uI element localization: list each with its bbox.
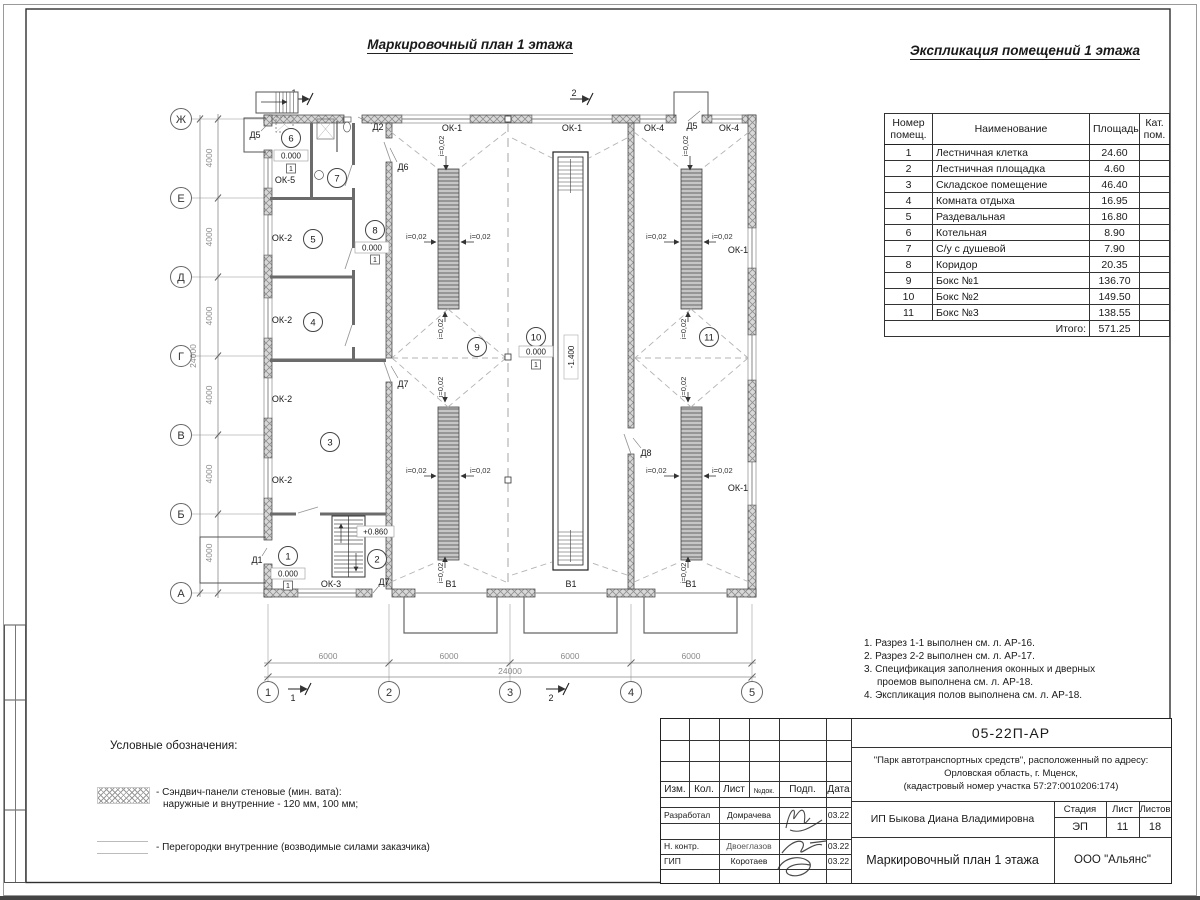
svg-text:1: 1	[373, 257, 377, 264]
svg-text:4000: 4000	[204, 543, 214, 562]
signature-developed	[780, 802, 826, 836]
svg-text:0.000: 0.000	[526, 348, 547, 357]
svg-text:i=0,02: i=0,02	[436, 563, 445, 584]
svg-text:4000: 4000	[204, 227, 214, 246]
gip-label: ГИП	[664, 856, 719, 867]
svg-text:Д: Д	[177, 272, 185, 284]
svg-text:i=0,02: i=0,02	[470, 466, 491, 475]
svg-text:4: 4	[628, 687, 634, 699]
col-cat: Кат. пом.	[1140, 114, 1170, 145]
developed-date: 03.22	[826, 810, 851, 821]
company-name: ООО "Альянс"	[1054, 837, 1171, 883]
svg-text:i=0,02: i=0,02	[712, 232, 733, 241]
svg-text:6000: 6000	[319, 651, 338, 661]
svg-text:0.000: 0.000	[362, 244, 383, 253]
svg-text:24000: 24000	[498, 666, 522, 676]
note-line: 3. Спецификация заполнения оконных и две…	[864, 663, 1194, 676]
svg-text:2: 2	[548, 693, 553, 703]
svg-text:i=0,02: i=0,02	[712, 466, 733, 475]
drawing-sheet: Ж Е Д Г В Б А 1 2 3 4 5	[0, 0, 1200, 900]
svg-text:i=0,02: i=0,02	[646, 232, 667, 241]
table-total-row: Итого:571.25	[885, 321, 1170, 337]
svg-text:i=0,02: i=0,02	[436, 377, 445, 398]
sandwich-panel-swatch	[97, 787, 150, 804]
stage-value: ЭП	[1054, 817, 1106, 837]
svg-text:ОК-2: ОК-2	[272, 475, 292, 485]
note-line: 1. Разрез 1-1 выполнен см. л. АР-16.	[864, 637, 1194, 650]
svg-text:1: 1	[290, 693, 295, 703]
table-row: 7С/у с душевой7.90	[885, 241, 1170, 257]
sheet-label: Лист	[1106, 801, 1139, 817]
col-data: Дата	[826, 784, 851, 795]
ncontr-label: Н. контр.	[664, 841, 719, 852]
axis-labels: Ж Е Д Г В Б А 1 2 3 4 5	[176, 114, 755, 699]
developed-label: Разработал	[664, 810, 719, 821]
svg-text:ОК-5: ОК-5	[275, 175, 295, 185]
table-row: 2Лестничная площадка4.60	[885, 161, 1170, 177]
svg-text:А: А	[177, 588, 185, 600]
svg-text:6000: 6000	[561, 651, 580, 661]
svg-text:4: 4	[310, 318, 315, 329]
table-row: 6Котельная8.90	[885, 225, 1170, 241]
svg-text:10: 10	[531, 333, 542, 344]
doc-number: 05-22П-АР	[851, 719, 1171, 747]
table-row: 8Коридор20.35	[885, 257, 1170, 273]
drawing-title-cell: Маркировочный план 1 этажа	[851, 837, 1054, 883]
ncontr-name: Двоеглазов	[719, 841, 779, 852]
table-row: 3Складское помещение46.40	[885, 177, 1170, 193]
svg-text:7: 7	[334, 174, 339, 185]
col-podp: Подп.	[779, 784, 826, 795]
svg-text:11: 11	[704, 333, 714, 344]
sheets-value: 18	[1139, 817, 1171, 837]
svg-text:0.000: 0.000	[281, 152, 302, 161]
svg-text:ОК-4: ОК-4	[719, 123, 739, 133]
legend: Условные обозначения: - Сэндвич-панели с…	[97, 740, 517, 854]
col-izm: Изм.	[661, 784, 689, 795]
table-row: 5Раздевальная16.80	[885, 209, 1170, 225]
svg-text:В1: В1	[445, 579, 456, 589]
svg-text:i=0,02: i=0,02	[470, 232, 491, 241]
svg-text:ОК-2: ОК-2	[272, 315, 292, 325]
svg-text:Б: Б	[177, 509, 184, 521]
svg-text:ОК-4: ОК-4	[644, 123, 664, 133]
opening-labels: ОК-1 ОК-1 ОК-4 ОК-4 Д5 Д2 Д6 Д5 ОК-5 ОК-…	[249, 121, 748, 589]
elevation-marks: 0.000 0.000 0.000 0.000 +0.860 -1.400 1 …	[271, 150, 576, 590]
note-line: проемов выполнена см. л. АР-18.	[864, 676, 1194, 689]
svg-text:В1: В1	[685, 579, 696, 589]
svg-text:-1.400: -1.400	[567, 345, 576, 368]
explication-table: Номер помещ. Наименование Площадь Кат. п…	[884, 113, 1170, 337]
svg-text:i=0,02: i=0,02	[437, 136, 446, 157]
partition-swatch	[97, 841, 148, 854]
note-line: 2. Разрез 2-2 выполнен см. л. АР-17.	[864, 650, 1194, 663]
svg-text:i=0,02: i=0,02	[406, 232, 427, 241]
plan-title: Маркировочный план 1 этажа	[250, 37, 690, 52]
signature-ncontr-gip	[774, 835, 830, 881]
svg-text:2: 2	[571, 88, 576, 98]
svg-text:9: 9	[474, 343, 479, 354]
svg-text:ОК-1: ОК-1	[442, 123, 462, 133]
col-area: Площадь	[1090, 114, 1140, 145]
staircase	[332, 516, 365, 577]
svg-text:6000: 6000	[682, 651, 701, 661]
svg-text:ОК-1: ОК-1	[728, 245, 748, 255]
gip-name: Коротаев	[719, 856, 779, 867]
svg-text:6: 6	[288, 134, 293, 145]
svg-text:1: 1	[285, 552, 290, 563]
table-row: 4Комната отдыха16.95	[885, 193, 1170, 209]
col-kol: Кол.	[689, 784, 719, 795]
svg-text:Д8: Д8	[640, 448, 651, 458]
svg-text:ОК-1: ОК-1	[728, 483, 748, 493]
sheets-label: Листов	[1139, 801, 1171, 817]
svg-text:Д7: Д7	[397, 379, 408, 389]
svg-text:Ж: Ж	[176, 114, 186, 126]
svg-text:2: 2	[386, 687, 392, 699]
col-list: Лист	[719, 784, 749, 795]
explication-title: Экспликация помещений 1 этажа	[820, 43, 1200, 58]
col-num: Номер помещ.	[885, 114, 933, 145]
svg-text:1: 1	[265, 687, 271, 699]
svg-text:1: 1	[286, 583, 290, 590]
sheet-value: 11	[1106, 817, 1139, 837]
client-name: ИП Быкова Диана Владимировна	[851, 801, 1054, 837]
svg-text:5: 5	[310, 235, 315, 246]
svg-text:ОК-3: ОК-3	[321, 579, 341, 589]
svg-text:6000: 6000	[440, 651, 459, 661]
svg-text:5: 5	[749, 687, 755, 699]
axis-grid: Ж Е Д Г В Б А 1 2 3 4 5	[171, 109, 763, 703]
svg-text:i=0,02: i=0,02	[679, 319, 688, 340]
svg-text:Д6: Д6	[397, 162, 408, 172]
title-block: Изм. Кол. Лист №док. Подп. Дата Разработ…	[660, 718, 1172, 884]
svg-text:1: 1	[534, 362, 538, 369]
svg-text:i=0,02: i=0,02	[681, 136, 690, 157]
svg-text:ОК-2: ОК-2	[272, 233, 292, 243]
legend-item2: - Перегородки внутренние (возводимые сил…	[156, 842, 430, 854]
col-ndok: №док.	[749, 786, 779, 797]
table-row: 9Бокс №1136.70	[885, 273, 1170, 289]
project-description: "Парк автотранспортных средств", располо…	[853, 749, 1169, 806]
developed-name: Домрачева	[719, 810, 779, 821]
svg-text:i=0,02: i=0,02	[436, 319, 445, 340]
table-row: 1Лестничная клетка24.60	[885, 145, 1170, 161]
svg-text:Д1: Д1	[251, 555, 262, 565]
svg-text:Д7: Д7	[378, 577, 389, 587]
room-numbers: 1 2 3 4 5 6 7 8 9 10 11	[279, 129, 719, 569]
svg-text:i=0,02: i=0,02	[646, 466, 667, 475]
svg-text:Д5: Д5	[686, 121, 697, 131]
svg-text:i=0,02: i=0,02	[406, 466, 427, 475]
svg-text:4000: 4000	[204, 464, 214, 483]
legend-item1-line2: наружные и внутренние - 120 мм, 100 мм;	[156, 799, 358, 811]
svg-text:4000: 4000	[204, 385, 214, 404]
note-line: 4. Экспликация полов выполнена см. л. АР…	[864, 689, 1194, 702]
svg-text:Д2: Д2	[372, 122, 383, 132]
notes: 1. Разрез 1-1 выполнен см. л. АР-16. 2. …	[864, 637, 1194, 702]
svg-text:1: 1	[289, 166, 293, 173]
svg-text:4000: 4000	[204, 148, 214, 167]
svg-text:ОК-2: ОК-2	[272, 394, 292, 404]
svg-text:4000: 4000	[204, 306, 214, 325]
col-name: Наименование	[933, 114, 1090, 145]
svg-text:ОК-1: ОК-1	[562, 123, 582, 133]
legend-title: Условные обозначения:	[110, 740, 517, 752]
svg-text:Г: Г	[178, 351, 184, 363]
svg-text:В: В	[177, 430, 184, 442]
svg-text:+0.860: +0.860	[363, 528, 388, 537]
svg-text:i=0,02: i=0,02	[679, 377, 688, 398]
svg-text:3: 3	[507, 687, 513, 699]
table-row: 10Бокс №2149.50	[885, 289, 1170, 305]
stage-label: Стадия	[1054, 801, 1106, 817]
table-row: 11Бокс №3138.55	[885, 305, 1170, 321]
svg-text:8: 8	[372, 226, 377, 237]
svg-text:В1: В1	[565, 579, 576, 589]
svg-text:Е: Е	[177, 193, 184, 205]
legend-item1-line1: - Сэндвич-панели стеновые (мин. вата):	[156, 787, 358, 799]
svg-text:2: 2	[374, 555, 379, 566]
svg-text:0.000: 0.000	[278, 570, 299, 579]
svg-text:24000: 24000	[188, 344, 198, 368]
svg-text:Д5: Д5	[249, 130, 260, 140]
svg-text:3: 3	[327, 438, 332, 449]
